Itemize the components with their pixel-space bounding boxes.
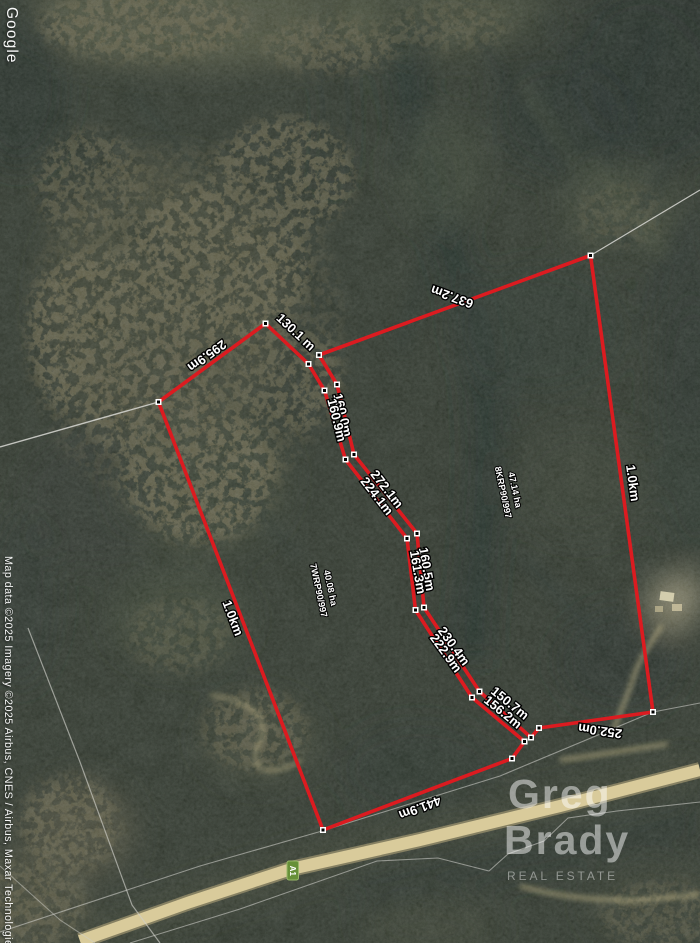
svg-text:Google: Google	[3, 7, 20, 64]
svg-text:Brady: Brady	[504, 817, 630, 863]
svg-text:REAL ESTATE: REAL ESTATE	[507, 869, 618, 883]
svg-text:A1: A1	[288, 866, 297, 877]
svg-text:Greg: Greg	[508, 771, 612, 817]
svg-text:Map data ©2025 Imagery ©2025 A: Map data ©2025 Imagery ©2025 Airbus, CNE…	[2, 556, 14, 943]
